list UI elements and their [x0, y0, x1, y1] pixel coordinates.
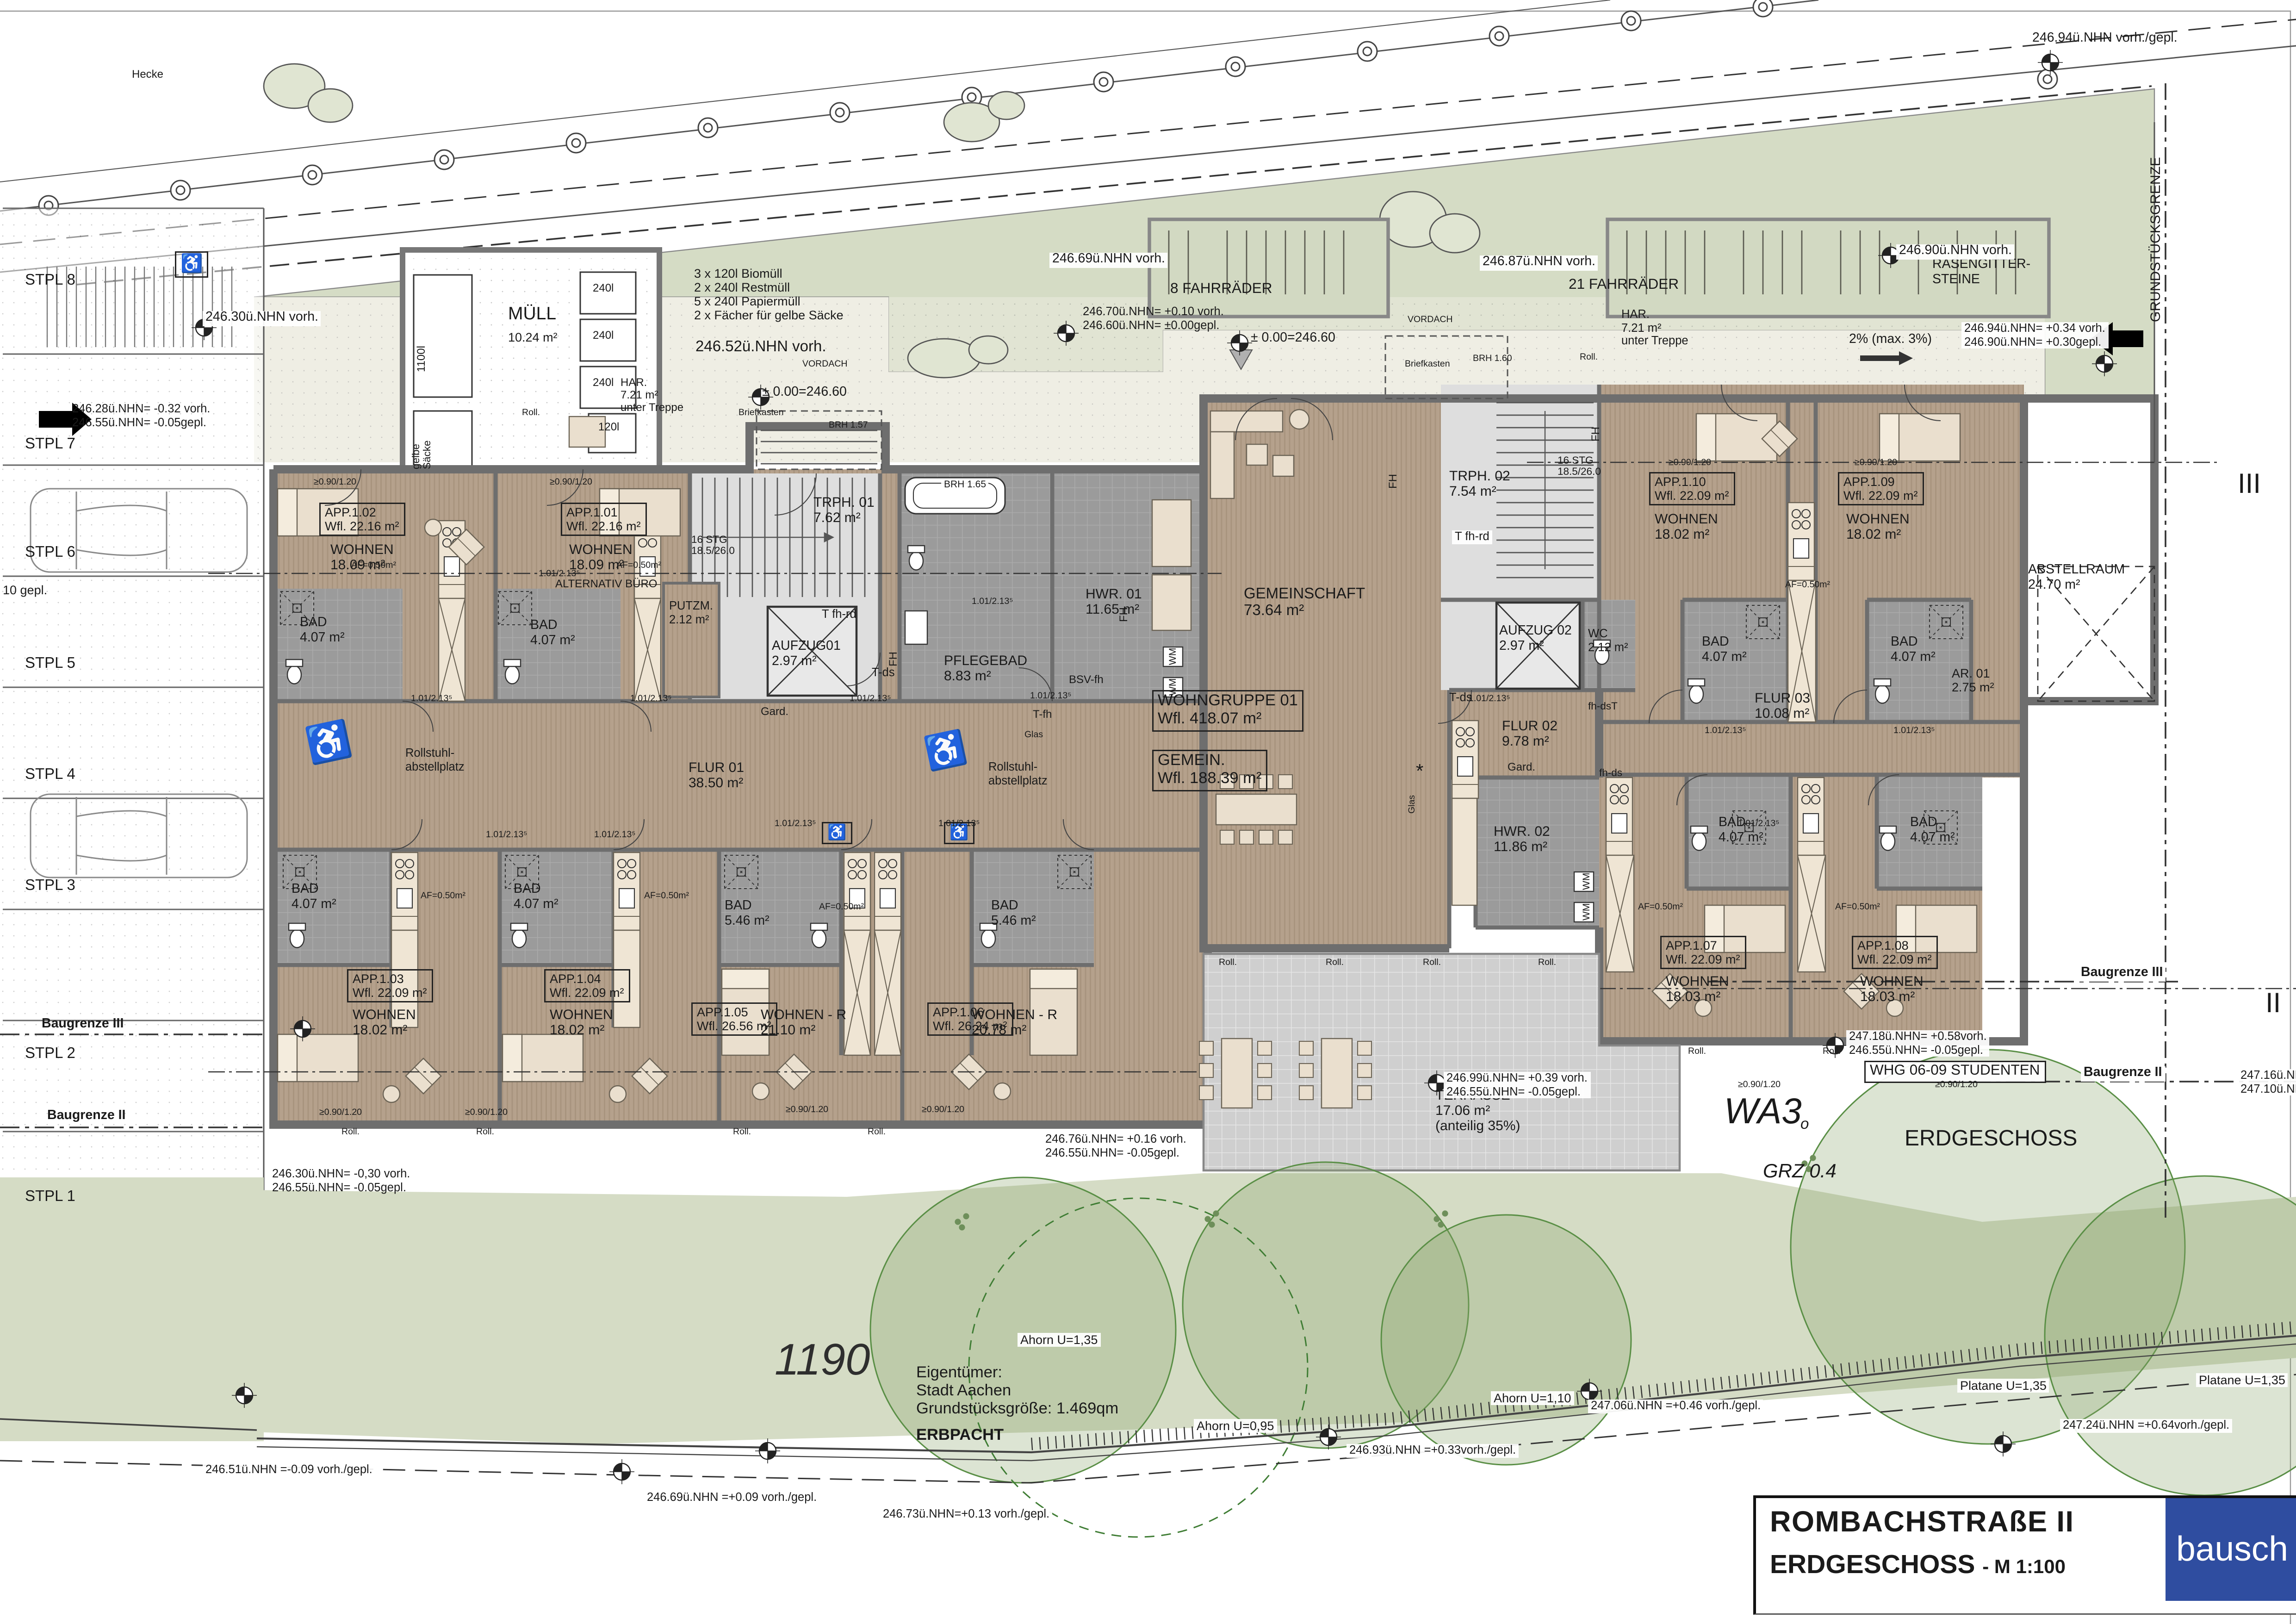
plan-label: GEMEINSCHAFT 73.64 m² [1244, 586, 1365, 620]
room-label-app-1-10: APP.1.10 Wfl. 22.09 m² [1649, 472, 1735, 505]
plan-label: ≥0.90/1.20 [550, 478, 592, 488]
plan-label: FH [1388, 474, 1401, 489]
plan-label: WM [1582, 873, 1593, 890]
plan-label: 246.52ü.NHN vorh. [695, 339, 826, 356]
plan-label: ≥0.90/1.20 [922, 1105, 964, 1115]
plan-label: TRPH. 01 7.62 m² [813, 496, 875, 527]
plan-label: FH [1591, 427, 1603, 442]
plan-label: III [2238, 469, 2261, 500]
plan-label: BRH 1.65 [941, 480, 989, 491]
plan-label: 3 x 120l Biomüll 2 x 240l Restmüll 5 x 2… [694, 267, 844, 323]
sheet-scale: - M 1:100 [1982, 1555, 2066, 1577]
plan-label: AF=0.50m² [1638, 902, 1683, 913]
plan-label: FH [888, 652, 901, 666]
plan-label: Briefkasten [738, 408, 784, 418]
plan-label: 246.76ü.NHN= +0.16 vorh. 246.55ü.NHN= -0… [1045, 1133, 1186, 1159]
plan-label: 246.69ü.NHN =+0.09 vorh./gepl. [644, 1491, 819, 1505]
plan-label: 246.30ü.NHN= -0,30 vorh. 246.55ü.NHN= -0… [272, 1168, 410, 1194]
plan-label: ± 0.00=246.60 [1251, 332, 1335, 347]
plan-label: AR. 01 2.75 m² [1952, 666, 1994, 694]
plan-label: 16 STG 18.5/26.0 [691, 535, 735, 558]
plan-label: STPL 1 [25, 1188, 75, 1206]
plan-label: 1.01/2.13⁵ [486, 830, 527, 840]
plan-label: BRH 1.57 [829, 421, 868, 431]
plan-label: AF=0.50m² [1835, 902, 1880, 913]
title-block: ROMBACHSTRAßE II ERDGESCHOSS - M 1:100 b… [1753, 1495, 2296, 1615]
plan-label: STPL 6 [25, 544, 75, 561]
plan-label: T-ds [872, 666, 895, 680]
plan-label: ≥0.90/1.20 [1669, 458, 1711, 468]
plan-label: MÜLL [508, 304, 556, 324]
plan-label: 1.01/2.13⁵ [1469, 694, 1510, 704]
plan-label: AF=0.50m² [819, 902, 864, 913]
plan-label: Roll. [522, 408, 540, 418]
plan-label: 246.90ü.NHN vorh. [1896, 244, 2015, 259]
plan-label: ABSTELLRAUM 24.70 m² [2028, 564, 2125, 593]
plan-label: II [2265, 989, 2281, 1020]
plan-label: T fh-rd [822, 608, 856, 622]
room-label-app-1-04: APP.1.04 Wfl. 22.09 m² [544, 969, 630, 1002]
plan-label: 16 STG 18.5/26.0 [1558, 455, 1601, 479]
plan-label: 246.73ü.NHN=+0.13 vorh./gepl. [880, 1508, 1052, 1521]
sheet-title: ERDGESCHOSS - M 1:100 [1770, 1551, 2074, 1581]
plan-label: WOHNEN 18.02 m² [353, 1008, 416, 1039]
plan-label: 246.51ü.NHN =-0.09 vorh./gepl. [203, 1463, 375, 1477]
plan-label: Briefkasten [1405, 360, 1450, 370]
plan-label: Baugrenze II [2081, 1066, 2165, 1081]
plan-label: Ahorn U=1,10 [1491, 1391, 1574, 1405]
plan-label: AF=0.50m² [616, 561, 661, 571]
plan-label: FH [1119, 607, 1131, 622]
plan-label: Rollstuhl- abstellplatz [988, 761, 1048, 787]
plan-label: Roll. [1423, 958, 1441, 968]
plan-label: WOHNEN - R 20.78 m² [972, 1008, 1057, 1039]
plan-label: 1.01/2.13⁵ [539, 569, 580, 579]
plan-label: Roll. [1326, 958, 1344, 968]
plan-label: GEMEIN. Wfl. 188.39 m² [1152, 750, 1267, 791]
plan-label: 1.01/2.13⁵ [775, 819, 816, 829]
plan-label: VORDACH [802, 360, 848, 370]
plan-label: ≥0.90/1.20 [314, 478, 356, 488]
plan-label: ≥0.90/1.20 [465, 1108, 508, 1118]
plan-label: FLUR 03 10.08 m² [1755, 691, 1810, 722]
plan-label: BAD 5.46 m² [725, 900, 769, 929]
plan-label: 1100l [416, 346, 429, 372]
plan-label: Roll. [341, 1127, 360, 1138]
room-label-app-1-01: APP.1.01 Wfl. 22.16 m² [561, 503, 646, 536]
plan-label: 247.24ü.NHN =+0.64vorh./gepl. [2060, 1419, 2232, 1432]
plan-label: 120l [598, 422, 619, 435]
plan-label: HWR. 01 11.65 m² [1086, 587, 1142, 618]
plan-label: BAD 4.07 m² [530, 619, 575, 649]
plan-label: 1.01/2.13⁵ [1738, 819, 1779, 829]
plan-label: AF=0.50m² [351, 561, 396, 571]
plan-label: T fh-rd [1452, 530, 1492, 544]
plan-label: 246.28ü.NHN= -0.32 vorh. 246.55ü.NHN= -0… [72, 403, 210, 429]
plan-label: ALTERNATIV BÜRO [555, 579, 658, 591]
plan-label: WOHNEN 18.03 m² [1666, 975, 1729, 1006]
plan-label: 1.01/2.13⁵ [850, 694, 891, 704]
plan-label: ♿ [303, 718, 355, 767]
plan-label: 21 FAHRRÄDER [1569, 278, 1679, 294]
plan-label: 246.30ü.NHN vorh. [203, 311, 321, 326]
plan-label: WC 2.12 m² [1588, 628, 1628, 654]
plan-label: BAD 4.07 m² [1891, 636, 1936, 666]
plan-label: BAD 5.46 m² [991, 900, 1036, 929]
plan-label: 1.01/2.13⁵ [1705, 726, 1746, 736]
plan-label: ERBPACHT [916, 1427, 1004, 1445]
plan-label: BRH 1.60 [1473, 354, 1512, 364]
plan-label: AF=0.50m² [644, 891, 689, 902]
plan-label: BAD 4.07 m² [1910, 816, 1955, 846]
plan-label: ≥0.90/1.20 [319, 1108, 362, 1118]
plan-label: Glas [1024, 730, 1043, 740]
plan-label: 246.94ü.NHN= +0.34 vorh. 246.90ü.NHN= +0… [1961, 322, 2108, 348]
plan-label: T-fh [1033, 709, 1052, 722]
plan-label: Roll. [1219, 958, 1237, 968]
plan-label: Eigentümer: Stadt Aachen Grundstücksgröß… [916, 1365, 1118, 1419]
plan-label: 1.01/2.13⁵ [411, 694, 452, 704]
plan-label: WM [1582, 903, 1593, 921]
plan-label: 247.18ü.NHN= +0.58vorh. 246.55ü.NHN= -0.… [1846, 1030, 1990, 1057]
plan-label: 247.06ü.NHN =+0.46 vorh./gepl. [1588, 1400, 1763, 1413]
plan-label: TRPH. 02 7.54 m² [1449, 469, 1510, 500]
bausch-logo: bausch [2166, 1498, 2296, 1601]
plan-label: 8 FAHRRÄDER [1170, 282, 1272, 298]
plan-label: Roll. [868, 1127, 886, 1138]
plan-label: Ahorn U=1,35 [1018, 1333, 1100, 1347]
plan-label: 1.01/2.13⁵ [972, 597, 1013, 607]
plan-label: ≥0.90/1.20 [1855, 458, 1897, 468]
plan-label: AUFZUG 02 2.97 m² [1499, 625, 1572, 654]
plan-label: gelbe Säcke [411, 440, 434, 469]
plan-label: o [1800, 1116, 1809, 1133]
plan-label: HAR. 7.21 m² unter Treppe [1621, 308, 1688, 348]
plan-label: Roll. [1580, 353, 1598, 363]
plan-label: STPL 8 [25, 272, 75, 289]
sheet: STPL 8STPL 7STPL 6STPL 5STPL 4STPL 3STPL… [0, 0, 2296, 1624]
plan-label: HAR. 7.21 m² unter Treppe [621, 378, 683, 415]
plan-label: 246.93ü.NHN =+0.33vorh./gepl. [1347, 1444, 1519, 1457]
plan-label: WHG 06-09 STUDENTEN [1864, 1061, 2046, 1083]
plan-label: AUFZUG01 2.97 m² [772, 640, 841, 670]
plan-label: 1.01/2.13⁵ [630, 694, 671, 704]
plan-label: STPL 3 [25, 877, 75, 895]
plan-label: 1.01/2.13⁵ [594, 830, 635, 840]
plan-label: ± 0.00=246.60 [762, 386, 847, 401]
room-label-wohngruppe-01: WOHNGRUPPE 01 Wfl. 418.07 m² [1152, 690, 1303, 731]
plan-label: STPL 5 [25, 655, 75, 672]
plan-label: HWR. 02 11.86 m² [1494, 825, 1550, 856]
room-label-app-1-02: APP.1.02 Wfl. 22.16 m² [319, 503, 405, 536]
plan-label: VORDACH [1408, 315, 1453, 325]
plan-label: 246.99ü.NHN= +0.39 vorh. 246.55ü.NHN= -0… [1444, 1072, 1590, 1098]
plan-label: Rollstuhl- abstellplatz [405, 747, 465, 773]
plan-label: fh-dsT [1588, 701, 1618, 713]
plan-label: Roll. [733, 1127, 751, 1138]
plan-label: Platane U=1,35 [2196, 1373, 2288, 1387]
plan-label: AF=0.50m² [1785, 580, 1830, 591]
plan-label: Baugrenze III [2078, 966, 2166, 981]
plan-label: Gard. [1508, 762, 1535, 775]
plan-label: 240l [593, 283, 614, 296]
plan-label: WOHNEN 18.02 m² [1846, 512, 1910, 543]
room-label-app-1-03: APP.1.03 Wfl. 22.09 m² [347, 969, 433, 1002]
plan-label: WA3 [1724, 1091, 1802, 1132]
plan-label: GRUNDSTÜCKSGRENZE [2149, 157, 2165, 322]
plan-label: 2% (max. 3%) [1849, 333, 1932, 348]
plan-labels: STPL 8STPL 7STPL 6STPL 5STPL 4STPL 3STPL… [0, 0, 2296, 1624]
room-label-app-1-07: APP.1.07 Wfl. 22.09 m² [1660, 936, 1746, 969]
plan-label: ≥0.90/1.20 [1935, 1080, 1978, 1090]
plan-label: WM [1169, 648, 1179, 665]
project-title: ROMBACHSTRAßE II [1770, 1506, 2074, 1540]
plan-label: WOHNEN 18.02 m² [550, 1008, 613, 1039]
plan-label: GRZ 0.4 [1763, 1161, 1837, 1182]
plan-label: PFLEGEBAD 8.83 m² [944, 654, 1027, 685]
plan-label: BSV-fh [1069, 675, 1104, 687]
plan-label: fh-ds [1599, 768, 1622, 779]
plan-label: 246.87ü.NHN vorh. [1480, 255, 1598, 270]
plan-label: Roll. [1688, 1047, 1706, 1057]
plan-label: WOHNEN 18.02 m² [1655, 512, 1718, 543]
plan-label: STPL 4 [25, 766, 75, 784]
plan-label: RASENGITTER- STEINE [1932, 258, 2030, 288]
plan-label: ≥0.90/1.20 [1738, 1080, 1781, 1090]
room-label-app-1-08: APP.1.08 Wfl. 22.09 m² [1852, 936, 1937, 969]
plan-label: 1190 [775, 1336, 870, 1385]
plan-label: Hecke [129, 69, 166, 82]
plan-label: 1.01/2.13⁵ [1893, 726, 1935, 736]
plan-label: STPL 2 [25, 1045, 75, 1063]
plan-label: 10 gepl. [3, 583, 47, 597]
plan-label: BAD 4.07 m² [1702, 636, 1747, 666]
plan-label: ♿ [175, 251, 209, 277]
plan-label: Baugrenze III [42, 1018, 124, 1033]
plan-label: ♿ [922, 730, 970, 775]
plan-label: BAD 4.07 m² [300, 616, 345, 646]
plan-label: AF=0.50m² [421, 891, 465, 902]
plan-label: ERDGESCHOSS [1905, 1127, 2077, 1152]
plan-label: Platane U=1,35 [1957, 1379, 2049, 1393]
plan-label: Ahorn U=0,95 [1194, 1419, 1277, 1433]
plan-label: Roll. [476, 1127, 494, 1138]
plan-label: WOHNEN 18.03 m² [1860, 975, 1924, 1006]
plan-label: FLUR 01 38.50 m² [689, 761, 744, 792]
plan-label: ≥0.90/1.20 [786, 1105, 828, 1115]
room-label-app-1-09: APP.1.09 Wfl. 22.09 m² [1838, 472, 1924, 505]
title-text: ROMBACHSTRAßE II ERDGESCHOSS - M 1:100 [1770, 1506, 2074, 1581]
plan-label: ♿ [822, 822, 852, 845]
plan-label: 247.16ü.NHN 247.10ü.NHN [2238, 1069, 2296, 1095]
plan-label: Glas [1408, 795, 1418, 814]
plan-label: Roll. [1538, 958, 1556, 968]
plan-label: 246.70ü.NHN= +0.10 vorh. 246.60ü.NHN= ±0… [1083, 305, 1224, 332]
plan-label: * [1416, 761, 1423, 783]
plan-label: Gard. [761, 707, 788, 719]
plan-label: Baugrenze II [47, 1109, 126, 1124]
plan-label: 240l [593, 378, 614, 390]
floor-plan: STPL 8STPL 7STPL 6STPL 5STPL 4STPL 3STPL… [0, 0, 2296, 1624]
plan-label: 10.24 m² [508, 330, 558, 344]
sheet-name: ERDGESCHOSS [1770, 1551, 1975, 1580]
plan-label: 246.69ü.NHN vorh. [1049, 253, 1168, 268]
plan-label: BAD 4.07 m² [514, 883, 558, 913]
plan-label: STPL 7 [25, 436, 75, 453]
plan-label: WOHNEN - R 21.10 m² [761, 1008, 846, 1039]
plan-label: 1.01/2.13⁵ [938, 819, 980, 829]
plan-label: 240l [593, 330, 614, 343]
plan-label: FLUR 02 9.78 m² [1502, 719, 1558, 750]
plan-label: Roll. [1823, 1047, 1841, 1057]
plan-label: 1.01/2.13⁵ [1030, 691, 1071, 702]
plan-label: BAD 4.07 m² [292, 883, 336, 913]
plan-label: PUTZM. 2.12 m² [669, 600, 713, 626]
plan-label: 246.94ü.NHN vorh./gepl. [2032, 32, 2178, 47]
